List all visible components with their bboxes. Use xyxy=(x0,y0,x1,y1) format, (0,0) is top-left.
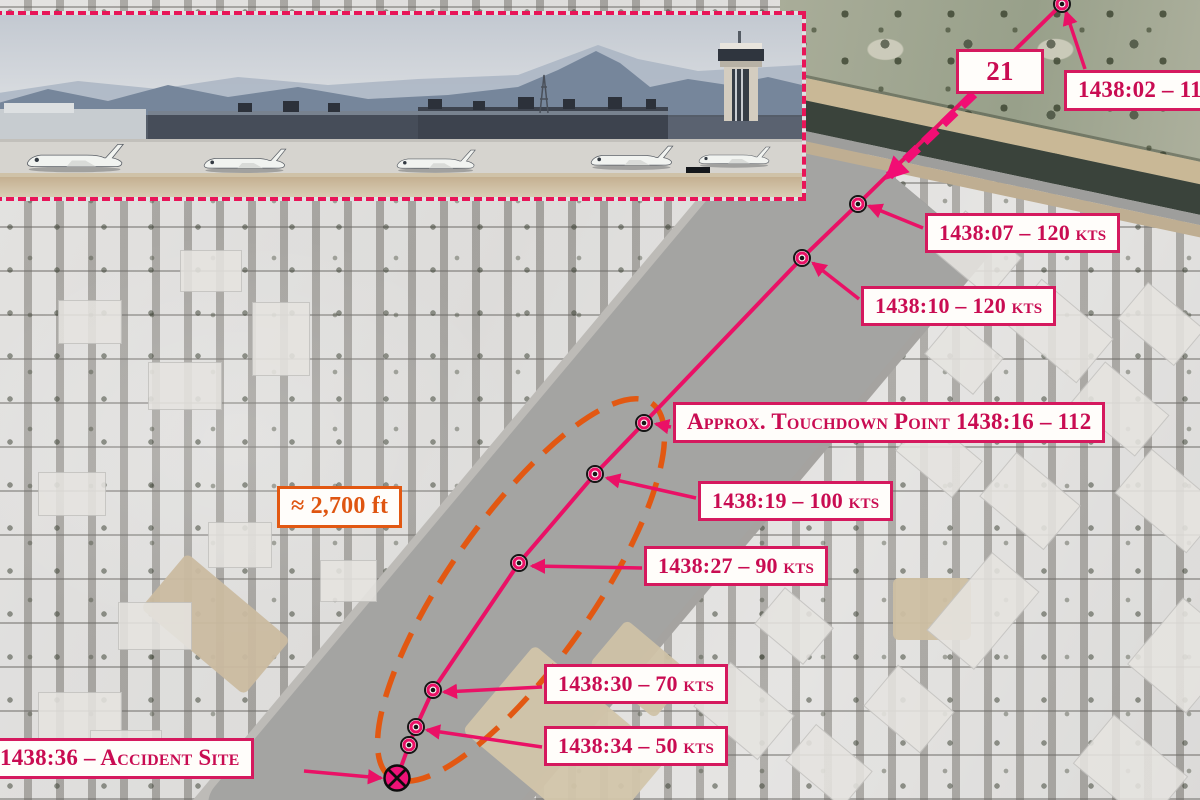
callout-arrow xyxy=(444,687,542,692)
flight-path-point-dot xyxy=(414,725,419,730)
callout-arrow xyxy=(1066,12,1085,69)
inset-photo-art xyxy=(0,15,802,197)
flight-path-point-dot xyxy=(593,472,598,477)
flight-path-point-dot xyxy=(856,202,861,207)
overrun-distance-ellipse xyxy=(331,362,711,800)
callout-arrow xyxy=(427,730,542,747)
figure-root: 211438:02 – 111438:07 – 120 kts1438:10 –… xyxy=(0,0,1200,800)
flight-path-point-dot xyxy=(642,421,647,426)
inset-white-hangar xyxy=(0,109,146,143)
callout-arrow xyxy=(656,424,671,427)
flight-path-point-dot xyxy=(1060,2,1065,7)
flight-path-point-dot xyxy=(517,561,522,566)
inset-photo xyxy=(0,11,806,201)
callout-arrow xyxy=(532,566,642,568)
callout-arrow xyxy=(813,263,859,299)
callout-arrow xyxy=(304,771,381,778)
inset-dirt-foreground xyxy=(0,177,802,197)
flight-path-point-dot xyxy=(407,743,412,748)
flight-path-point-dot xyxy=(800,256,805,261)
flight-path-point-dot xyxy=(431,688,436,693)
inset-control-tower xyxy=(718,31,764,121)
callout-arrow xyxy=(869,206,923,228)
